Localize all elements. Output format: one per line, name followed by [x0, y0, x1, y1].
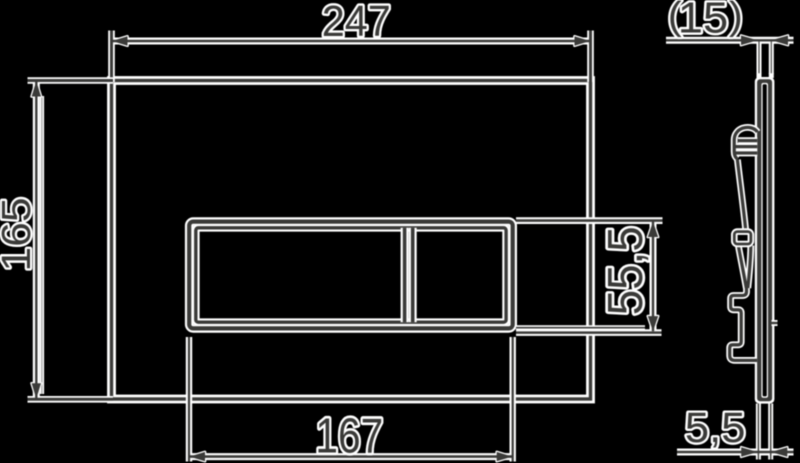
svg-text:165: 165 [0, 197, 40, 271]
svg-text:): ) [729, 0, 743, 37]
svg-text:15: 15 [678, 0, 728, 42]
svg-text:(: ( [668, 0, 683, 37]
svg-text:55,5: 55,5 [599, 226, 654, 315]
svg-text:167: 167 [315, 408, 383, 463]
svg-text:5,5: 5,5 [685, 404, 746, 452]
svg-text:247: 247 [322, 0, 391, 46]
